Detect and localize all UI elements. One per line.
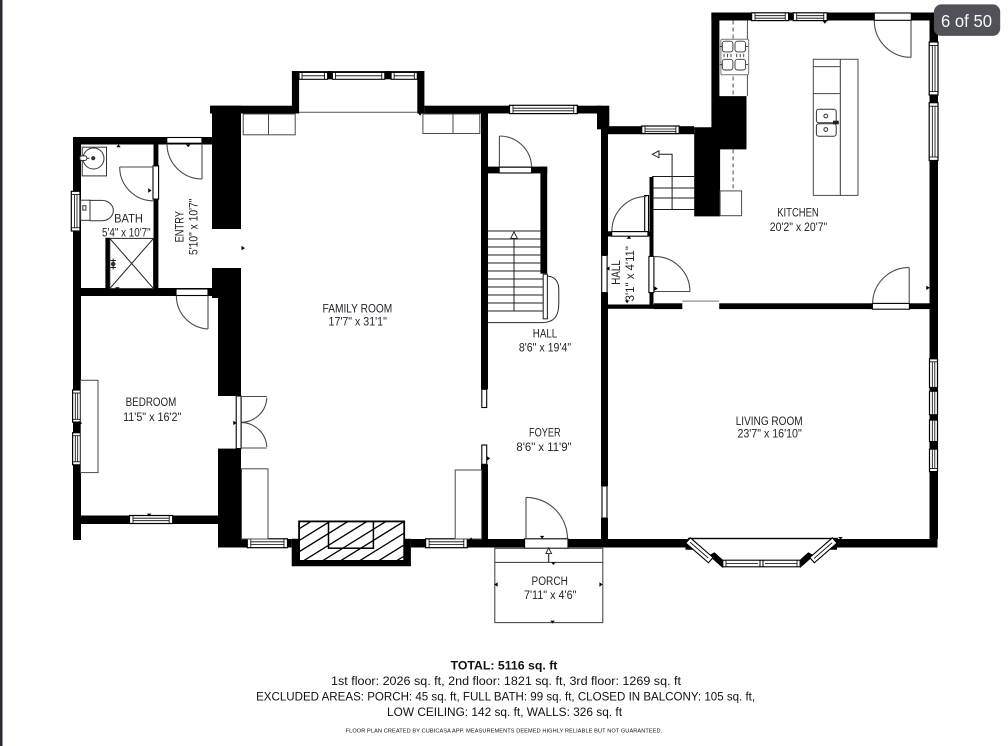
svg-text:HALL: HALL [609, 260, 623, 285]
svg-text:TOTAL: 5116 sq. ft: TOTAL: 5116 sq. ft [451, 659, 558, 673]
svg-text:EXCLUDED AREAS: PORCH: 45 sq.: EXCLUDED AREAS: PORCH: 45 sq. ft, FULL B… [256, 690, 755, 704]
svg-text:BATH: BATH [114, 211, 143, 225]
svg-text:1st floor: 2026 sq. ft, 2nd fl: 1st floor: 2026 sq. ft, 2nd floor: 1821 … [331, 674, 682, 688]
svg-text:8'6" x 11'9": 8'6" x 11'9" [516, 440, 571, 454]
svg-text:FAMILY ROOM: FAMILY ROOM [323, 301, 393, 315]
svg-text:11'5" x 16'2": 11'5" x 16'2" [123, 410, 181, 424]
svg-text:3'1" x 4'11": 3'1" x 4'11" [623, 246, 637, 301]
svg-text:6 of 50: 6 of 50 [941, 11, 992, 31]
svg-text:8'6" x 19'4": 8'6" x 19'4" [519, 341, 571, 355]
svg-text:FOYER: FOYER [529, 426, 561, 440]
svg-text:PORCH: PORCH [532, 574, 568, 588]
svg-text:5'4" x 10'7": 5'4" x 10'7" [102, 226, 151, 240]
svg-text:20'2" x 20'7": 20'2" x 20'7" [770, 220, 828, 234]
svg-text:FLOOR PLAN CREATED BY CUBICASA: FLOOR PLAN CREATED BY CUBICASA APP. MEAS… [346, 729, 663, 735]
svg-text:5'10" x 10'7": 5'10" x 10'7" [186, 199, 200, 255]
svg-text:BEDROOM: BEDROOM [126, 395, 177, 409]
svg-text:KITCHEN: KITCHEN [777, 205, 819, 219]
svg-text:17'7" x 31'1": 17'7" x 31'1" [329, 314, 387, 328]
svg-text:7'11" x 4'6": 7'11" x 4'6" [524, 588, 577, 602]
svg-text:23'7" x 16'10": 23'7" x 16'10" [737, 427, 801, 441]
svg-text:HALL: HALL [533, 326, 558, 340]
svg-text:LOW CEILING: 142 sq. ft, WALLS: LOW CEILING: 142 sq. ft, WALLS: 326 sq. … [387, 705, 623, 719]
svg-text:ENTRY: ENTRY [173, 211, 187, 242]
